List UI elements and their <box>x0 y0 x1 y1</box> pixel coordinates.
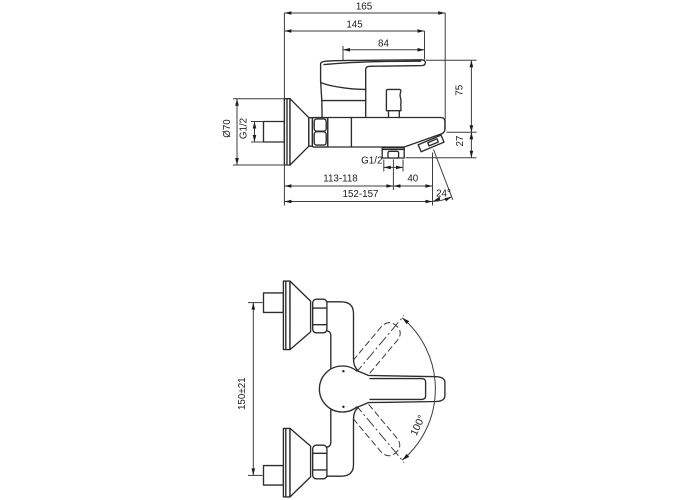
svg-text:G1/2: G1/2 <box>361 156 382 167</box>
svg-text:152-157: 152-157 <box>343 189 379 200</box>
svg-text:75: 75 <box>454 84 465 95</box>
svg-text:113-118: 113-118 <box>323 173 358 184</box>
svg-text:84: 84 <box>378 38 389 49</box>
svg-text:24°: 24° <box>436 188 451 199</box>
svg-text:40: 40 <box>407 173 418 184</box>
svg-text:150±21: 150±21 <box>237 377 248 410</box>
svg-text:165: 165 <box>356 2 373 13</box>
svg-text:27: 27 <box>455 136 466 147</box>
svg-text:G1/2: G1/2 <box>238 118 249 139</box>
svg-text:145: 145 <box>346 20 363 31</box>
svg-text:Ø70: Ø70 <box>222 119 233 138</box>
